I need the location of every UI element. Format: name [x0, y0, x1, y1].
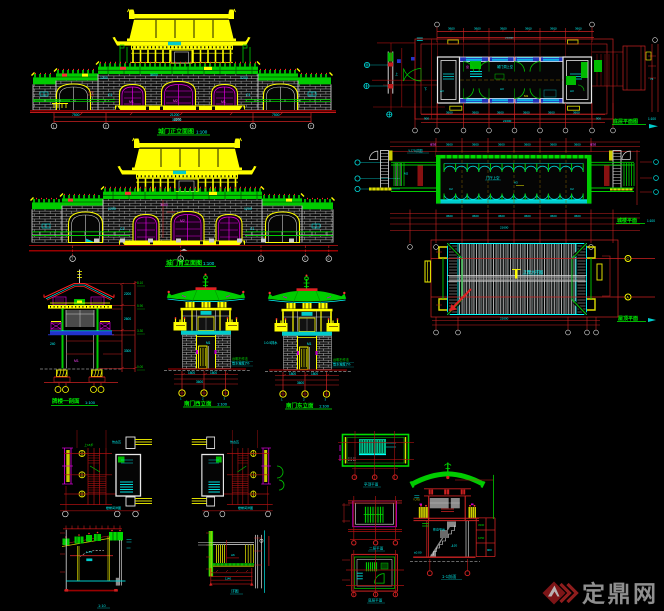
svg-text:M2: M2 [404, 172, 408, 176]
svg-text:A3: A3 [570, 89, 574, 93]
svg-text:楼梯间详图: 楼梯间详图 [106, 505, 121, 510]
svg-text:0: 0 [328, 257, 330, 261]
svg-text:A3: A3 [500, 87, 504, 91]
svg-text:2600: 2600 [124, 317, 131, 321]
svg-text:2200: 2200 [124, 292, 131, 296]
svg-text:1800: 1800 [210, 371, 217, 375]
svg-text:雀替: 雀替 [590, 142, 596, 147]
svg-text:C1: C1 [246, 93, 251, 97]
svg-text:M1: M1 [524, 94, 528, 98]
svg-text:3600: 3600 [498, 214, 505, 218]
svg-text:1-1剖面: 1-1剖面 [442, 573, 456, 580]
svg-text:3600: 3600 [196, 380, 203, 384]
svg-text:21600: 21600 [500, 226, 509, 230]
svg-text:城门洞上空: 城门洞上空 [497, 64, 513, 69]
svg-text:900: 900 [424, 117, 429, 121]
svg-text:21600: 21600 [505, 36, 514, 40]
svg-text:C1: C1 [120, 227, 125, 231]
svg-text:1:100: 1:100 [319, 404, 330, 409]
svg-text:1200: 1200 [244, 207, 252, 211]
svg-text:1800: 1800 [188, 371, 195, 375]
svg-text:1200: 1200 [108, 207, 116, 211]
svg-text:3600: 3600 [548, 111, 555, 115]
svg-text:1650: 1650 [478, 536, 485, 540]
svg-text:1:2.5: 1:2.5 [86, 550, 93, 554]
svg-text:南门西立面: 南门西立面 [184, 400, 212, 408]
svg-text:8.10: 8.10 [137, 281, 143, 285]
svg-text:3600: 3600 [446, 143, 453, 147]
svg-text:3600: 3600 [574, 214, 581, 218]
svg-text:3600: 3600 [160, 203, 168, 207]
svg-text:±0.00: ±0.00 [414, 551, 422, 555]
svg-text:城门正立面图: 城门正立面图 [158, 128, 194, 136]
svg-text:3970: 3970 [174, 117, 181, 121]
svg-text:900: 900 [596, 117, 601, 121]
svg-text:仿古瓦: 仿古瓦 [112, 439, 121, 444]
svg-text:定鼎网: 定鼎网 [582, 581, 659, 607]
svg-text:7500: 7500 [272, 113, 280, 117]
svg-text:详图: 详图 [231, 589, 239, 594]
svg-text:C1: C1 [250, 227, 255, 231]
svg-text:M1: M1 [74, 359, 79, 363]
svg-text:900: 900 [487, 548, 492, 552]
svg-text:C2: C2 [449, 187, 453, 191]
svg-text:7500: 7500 [72, 113, 80, 117]
svg-text:1200: 1200 [100, 76, 108, 80]
svg-text:3600: 3600 [550, 27, 557, 31]
svg-text:21600: 21600 [500, 317, 509, 321]
svg-text:雀替: 雀替 [430, 142, 436, 147]
svg-text:M1: M1 [129, 100, 134, 104]
svg-text:C1: C1 [108, 93, 113, 97]
svg-text:牌楼一剖面: 牌楼一剖面 [52, 397, 80, 405]
svg-text:240: 240 [50, 342, 56, 346]
svg-text:1200: 1200 [240, 76, 248, 80]
svg-text:3.30: 3.30 [137, 329, 143, 333]
svg-text:3600: 3600 [523, 111, 530, 115]
svg-text:A3: A3 [440, 89, 444, 93]
svg-text:南门东立面: 南门东立面 [286, 402, 314, 410]
svg-text:5: 5 [252, 125, 254, 129]
svg-text:3600: 3600 [446, 214, 453, 218]
svg-text:1:100: 1:100 [647, 219, 655, 223]
svg-text:1:100: 1:100 [85, 400, 96, 405]
svg-text:74: 74 [650, 77, 654, 81]
svg-text:1: 1 [304, 257, 306, 261]
svg-text:3600: 3600 [498, 143, 505, 147]
svg-text:3600: 3600 [150, 73, 158, 77]
svg-text:1:0.5排水: 1:0.5排水 [264, 340, 278, 345]
svg-text:7: 7 [310, 125, 312, 129]
svg-text:1: 1 [53, 125, 55, 129]
svg-text:窗: 窗 [466, 64, 469, 69]
svg-text:3600: 3600 [525, 27, 532, 31]
svg-text:A3: A3 [514, 181, 518, 185]
svg-text:正脊大样图: 正脊大样图 [523, 269, 543, 275]
svg-text:M1: M1 [206, 341, 211, 345]
svg-text:城楼平面: 城楼平面 [617, 217, 637, 224]
svg-text:M1: M1 [221, 100, 226, 104]
svg-text:3600: 3600 [497, 111, 504, 115]
svg-text:3300: 3300 [478, 523, 485, 527]
svg-text:底层平面: 底层平面 [368, 598, 383, 603]
svg-text:1:100: 1:100 [217, 402, 228, 407]
svg-text:3600: 3600 [446, 111, 453, 115]
svg-text:台明石作法: 台明石作法 [232, 356, 248, 361]
svg-text:上18步: 上18步 [84, 442, 93, 447]
svg-text:仿古瓦: 仿古瓦 [230, 439, 239, 444]
svg-text:散水坡度2%: 散水坡度2% [232, 361, 250, 366]
svg-text:楼梯间详图: 楼梯间详图 [238, 505, 253, 510]
svg-text:屋顶平面: 屋顶平面 [618, 315, 638, 322]
svg-text:1:100: 1:100 [196, 130, 208, 135]
svg-text:3600: 3600 [448, 27, 455, 31]
svg-text:休息平台: 休息平台 [433, 527, 445, 532]
svg-text:上20: 上20 [451, 543, 458, 548]
svg-text:21600: 21600 [503, 119, 512, 123]
svg-text:1:100: 1:100 [203, 261, 215, 266]
svg-text:7: 7 [71, 257, 73, 261]
svg-text:二层平面: 二层平面 [369, 546, 384, 551]
svg-text:2: 2 [105, 125, 107, 129]
svg-text:3600: 3600 [474, 27, 481, 31]
svg-text:上: 上 [395, 71, 398, 76]
svg-text:5.90: 5.90 [137, 304, 143, 308]
svg-text:1:10: 1:10 [98, 603, 107, 608]
svg-text:3600: 3600 [472, 111, 479, 115]
svg-text:C2: C2 [570, 187, 574, 191]
svg-text:3600: 3600 [574, 143, 581, 147]
svg-text:3600: 3600 [550, 214, 557, 218]
svg-text:1140: 1140 [225, 577, 231, 581]
svg-text:3600: 3600 [472, 143, 479, 147]
svg-text:3600: 3600 [500, 27, 507, 31]
svg-text:M2: M2 [180, 219, 185, 223]
svg-text:3600: 3600 [524, 214, 531, 218]
svg-text:3600: 3600 [573, 111, 580, 115]
svg-text:亭顶平面: 亭顶平面 [364, 482, 379, 487]
svg-text:3600: 3600 [550, 143, 557, 147]
svg-text:3600: 3600 [575, 27, 582, 31]
svg-text:城门背立面图: 城门背立面图 [166, 259, 202, 267]
svg-text:3600: 3600 [472, 214, 479, 218]
svg-text:M2: M2 [173, 99, 178, 103]
svg-text:3300: 3300 [124, 349, 131, 353]
svg-text:YJ75详图: YJ75详图 [408, 148, 423, 153]
svg-text:底层平面图: 底层平面图 [612, 118, 638, 125]
svg-text:1:100: 1:100 [648, 117, 656, 121]
svg-text:0.00: 0.00 [137, 365, 143, 369]
svg-text:3600: 3600 [524, 143, 531, 147]
svg-text:A6: A6 [231, 553, 235, 557]
svg-text:2: 2 [260, 257, 262, 261]
svg-text:门厅上空: 门厅上空 [486, 175, 500, 180]
svg-text:下: 下 [424, 87, 427, 91]
svg-text:YJ75: YJ75 [413, 498, 420, 502]
